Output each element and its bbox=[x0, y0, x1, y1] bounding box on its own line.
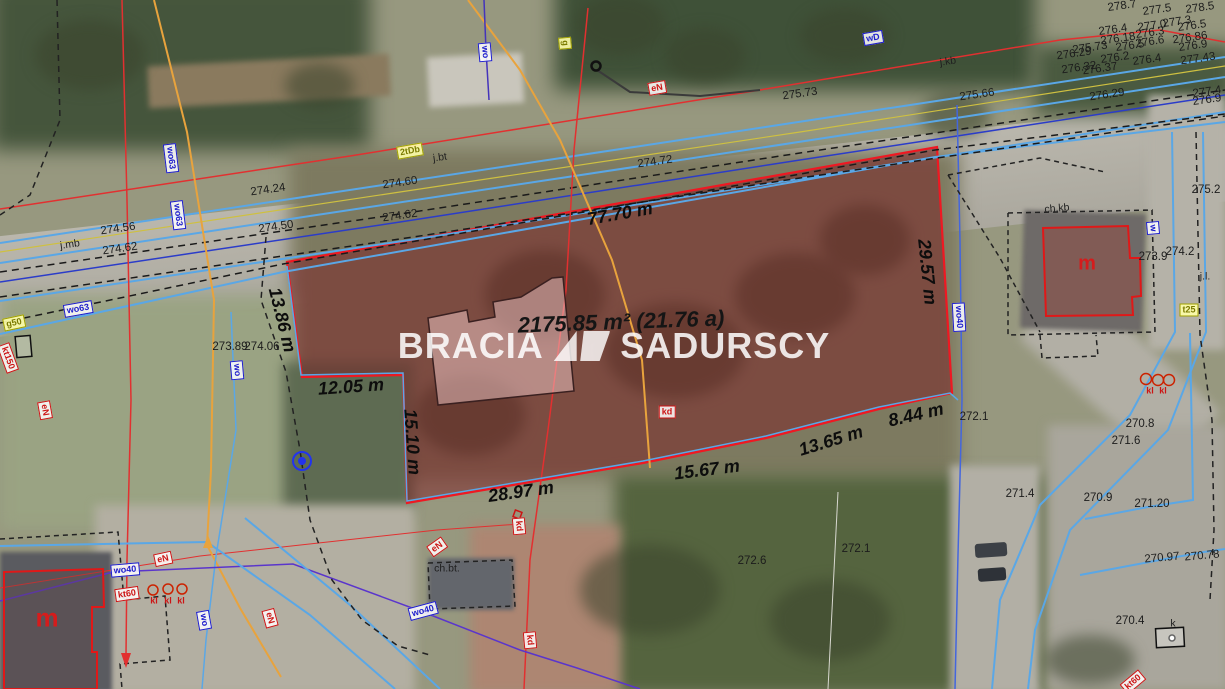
utility-label: kt60 bbox=[114, 586, 140, 602]
utility-label: wo63 bbox=[163, 143, 179, 173]
utility-label: wo bbox=[196, 610, 212, 630]
dimension-label: 8.44 m bbox=[886, 398, 945, 431]
elevation-label: 275.2 bbox=[1192, 184, 1221, 196]
agency-logo-icon bbox=[554, 331, 610, 361]
utility-label: g50 bbox=[2, 314, 26, 331]
elevation-label: 274.72 bbox=[637, 154, 674, 171]
elevation-label: 274.24 bbox=[250, 182, 287, 199]
elevation-label: 274.06 bbox=[244, 341, 279, 353]
utility-label: kl bbox=[175, 596, 187, 607]
utility-label: wD bbox=[862, 30, 883, 46]
agency-watermark: BRACIA SADURSCY bbox=[398, 325, 831, 367]
utility-label: wo bbox=[478, 42, 493, 62]
elevation-label: 275.66 bbox=[959, 87, 996, 104]
utility-label: wo63 bbox=[63, 300, 93, 318]
utility-label: t25 bbox=[1179, 304, 1198, 317]
utility-label: eN bbox=[261, 608, 278, 628]
utility-label: j.bt bbox=[430, 151, 449, 164]
utility-label: kl bbox=[162, 596, 174, 607]
utility-label: j.kb bbox=[937, 55, 959, 69]
elevation-label: 272.1 bbox=[960, 411, 989, 423]
elevation-label: 274.60 bbox=[382, 175, 419, 192]
utility-label: wo63 bbox=[170, 200, 186, 230]
elevation-label: 277.5 bbox=[1142, 2, 1172, 18]
utility-label: w bbox=[1146, 221, 1160, 235]
elevation-label: 270.97 bbox=[1144, 550, 1180, 565]
utility-label: k bbox=[1168, 619, 1177, 630]
elevation-label: 270.4 bbox=[1116, 615, 1145, 627]
cadastral-map-image: 77.70 m29.57 m13.86 m12.05 m15.10 m28.97… bbox=[0, 0, 1225, 689]
utility-label: j.mb bbox=[57, 238, 82, 252]
dimension-label: 77.70 m bbox=[586, 198, 655, 230]
elevation-label: 272.1 bbox=[842, 543, 871, 555]
elevation-label: 276.29 bbox=[1089, 87, 1126, 104]
elevation-label: 273.9 bbox=[1139, 251, 1168, 263]
dimension-label: 12.05 m bbox=[317, 374, 384, 400]
utility-label: kd bbox=[523, 631, 537, 649]
elevation-label: 278.7 bbox=[1107, 0, 1137, 14]
utility-label: eN bbox=[153, 551, 173, 567]
utility-label: kd bbox=[512, 517, 526, 535]
elevation-label: 276.4 bbox=[1132, 52, 1162, 68]
watermark-text-bracia: BRACIA bbox=[398, 325, 544, 367]
elevation-label: 271.6 bbox=[1112, 435, 1141, 447]
elevation-label: 274.2 bbox=[1166, 246, 1195, 258]
elevation-label: 270.9 bbox=[1084, 492, 1113, 504]
dimension-label: 29.57 m bbox=[913, 238, 941, 306]
utility-label: eN bbox=[647, 80, 667, 96]
utility-label: kd bbox=[659, 406, 676, 419]
elevation-label: 274.62 bbox=[382, 208, 419, 225]
utility-label: wo40 bbox=[110, 562, 140, 577]
elevation-label: 272.6 bbox=[738, 555, 767, 567]
utility-label: kl bbox=[1157, 386, 1169, 397]
dimension-label: 15.10 m bbox=[399, 408, 425, 475]
utility-label: wo40 bbox=[952, 302, 966, 331]
elevation-label: 271.4 bbox=[1006, 488, 1035, 500]
elevation-label: 274.56 bbox=[100, 221, 137, 238]
dimension-label: 28.97 m bbox=[487, 477, 555, 507]
utility-label: ch.kb bbox=[1042, 202, 1072, 215]
building-letter: m bbox=[35, 603, 58, 634]
elevation-label: 274.62 bbox=[102, 241, 139, 258]
elevation-label: 271.20 bbox=[1134, 498, 1169, 510]
building-letter: m bbox=[1078, 253, 1096, 276]
utility-label: wo40 bbox=[408, 601, 439, 621]
utility-label: eN bbox=[37, 400, 53, 420]
elevation-label: 275.73 bbox=[782, 86, 819, 103]
utility-label: eN bbox=[426, 537, 448, 558]
utility-label: j.l. bbox=[1198, 272, 1213, 283]
elevation-label: 273.89 bbox=[212, 341, 247, 353]
elevation-label: 276.9 bbox=[1192, 92, 1222, 108]
dimension-label: 13.65 m bbox=[796, 421, 865, 460]
utility-label: g bbox=[558, 37, 572, 50]
utility-label: 2tDb bbox=[396, 142, 424, 159]
watermark-text-sadurscy: SADURSCY bbox=[620, 325, 830, 367]
utility-label: kl bbox=[148, 596, 160, 607]
utility-label: kt150 bbox=[0, 342, 19, 374]
utility-label: kl bbox=[1144, 386, 1156, 397]
utility-label: wo bbox=[230, 360, 245, 380]
dimension-label: 15.67 m bbox=[673, 456, 741, 485]
elevation-label: 270.78 bbox=[1184, 548, 1220, 563]
elevation-label: 274.50 bbox=[258, 219, 295, 236]
elevation-label: 270.8 bbox=[1126, 418, 1155, 430]
utility-label: kt60 bbox=[1120, 669, 1147, 689]
utility-label: ch.bt. bbox=[432, 564, 462, 575]
